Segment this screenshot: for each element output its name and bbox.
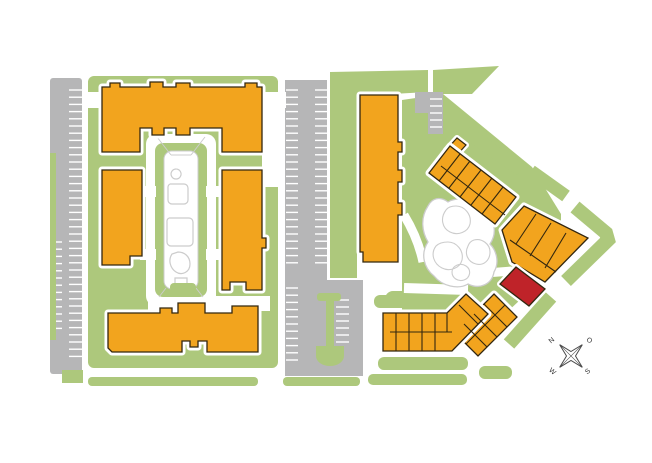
building-west-left[interactable] [102, 170, 142, 265]
courtyard-deck [170, 283, 196, 292]
grass-chain-bottom-strip-2 [368, 374, 467, 385]
grass-se-connector [479, 366, 512, 379]
walkway-pond-south [404, 288, 468, 290]
grass-chain-top-strip [374, 295, 462, 308]
grass-bottom-strip-b [283, 377, 360, 386]
island-stem [326, 301, 334, 348]
compass-cross [560, 345, 583, 368]
courtyard [140, 134, 222, 306]
grass-bottom-left-square [62, 370, 83, 383]
island-bulb [316, 346, 344, 366]
grass-chain-bottom-strip [378, 357, 468, 370]
compass-label-east: O [585, 336, 594, 345]
grass-left-edge-sliver [50, 153, 56, 340]
grass-bottom-strip-a [88, 377, 258, 386]
building-west-right[interactable] [222, 170, 266, 290]
building-central-tower[interactable] [360, 95, 402, 262]
island-cap [317, 293, 341, 301]
grass-top-wedge [433, 66, 499, 94]
compass-label-west: W [547, 367, 557, 377]
compass-label-north: N [548, 337, 556, 346]
compass-label-south: S [584, 367, 592, 376]
site-plan-svg: NOSW [0, 0, 652, 463]
compass: NOSW [547, 336, 594, 376]
site-plan-canvas: NOSW [0, 0, 652, 463]
